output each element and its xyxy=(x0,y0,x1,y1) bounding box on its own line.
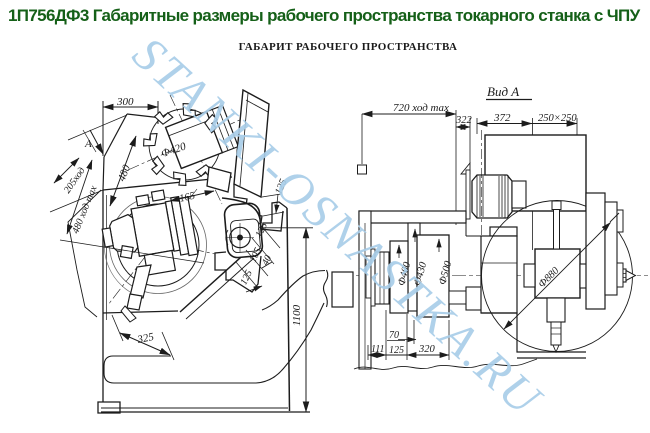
svg-text:322: 322 xyxy=(455,115,473,126)
svg-text:720 ход max: 720 ход max xyxy=(393,102,449,114)
svg-text:125: 125 xyxy=(238,268,254,286)
svg-text:Вид А: Вид А xyxy=(487,84,519,99)
svg-text:480: 480 xyxy=(116,163,133,183)
svg-text:480 ход max: 480 ход max xyxy=(70,184,99,236)
svg-text:111: 111 xyxy=(371,344,385,355)
svg-text:372: 372 xyxy=(493,112,511,124)
svg-text:А: А xyxy=(84,138,92,150)
svg-text:125: 125 xyxy=(389,345,404,356)
svg-text:165: 165 xyxy=(178,191,196,205)
svg-text:205ход: 205ход xyxy=(62,165,88,195)
svg-text:300: 300 xyxy=(116,96,134,108)
svg-text:1100: 1100 xyxy=(291,304,303,326)
svg-text:325: 325 xyxy=(135,331,155,346)
svg-text:250×250: 250×250 xyxy=(538,113,577,124)
svg-text:70: 70 xyxy=(389,330,399,341)
